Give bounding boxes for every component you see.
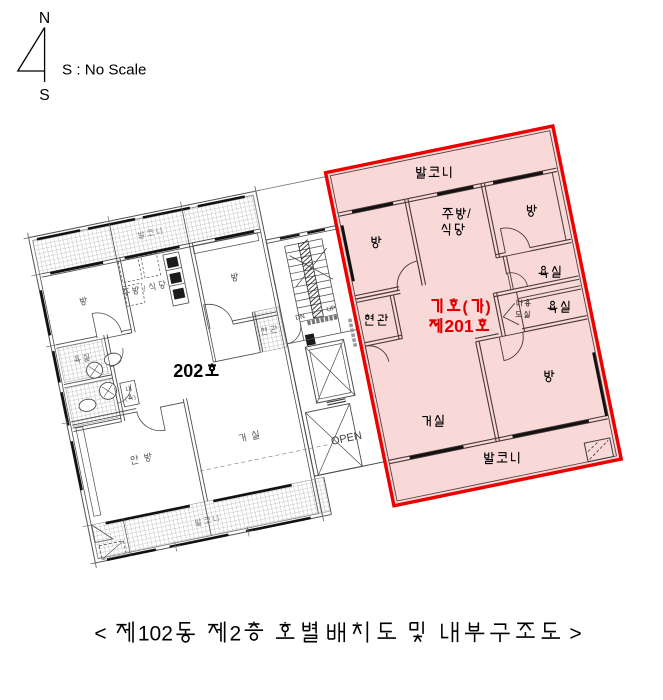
svg-text:(: ( xyxy=(462,299,468,316)
svg-text:N: N xyxy=(39,10,50,27)
svg-text:S : No Scale: S : No Scale xyxy=(62,62,146,79)
svg-text:): ) xyxy=(485,299,490,316)
svg-text:201: 201 xyxy=(444,316,473,336)
svg-text:102: 102 xyxy=(138,623,173,646)
svg-text:S: S xyxy=(39,87,49,104)
svg-text:>: > xyxy=(564,623,582,646)
svg-text:202: 202 xyxy=(173,361,203,381)
svg-text:/: / xyxy=(467,207,471,221)
svg-text:<: < xyxy=(94,623,112,646)
svg-text:2: 2 xyxy=(230,623,242,646)
